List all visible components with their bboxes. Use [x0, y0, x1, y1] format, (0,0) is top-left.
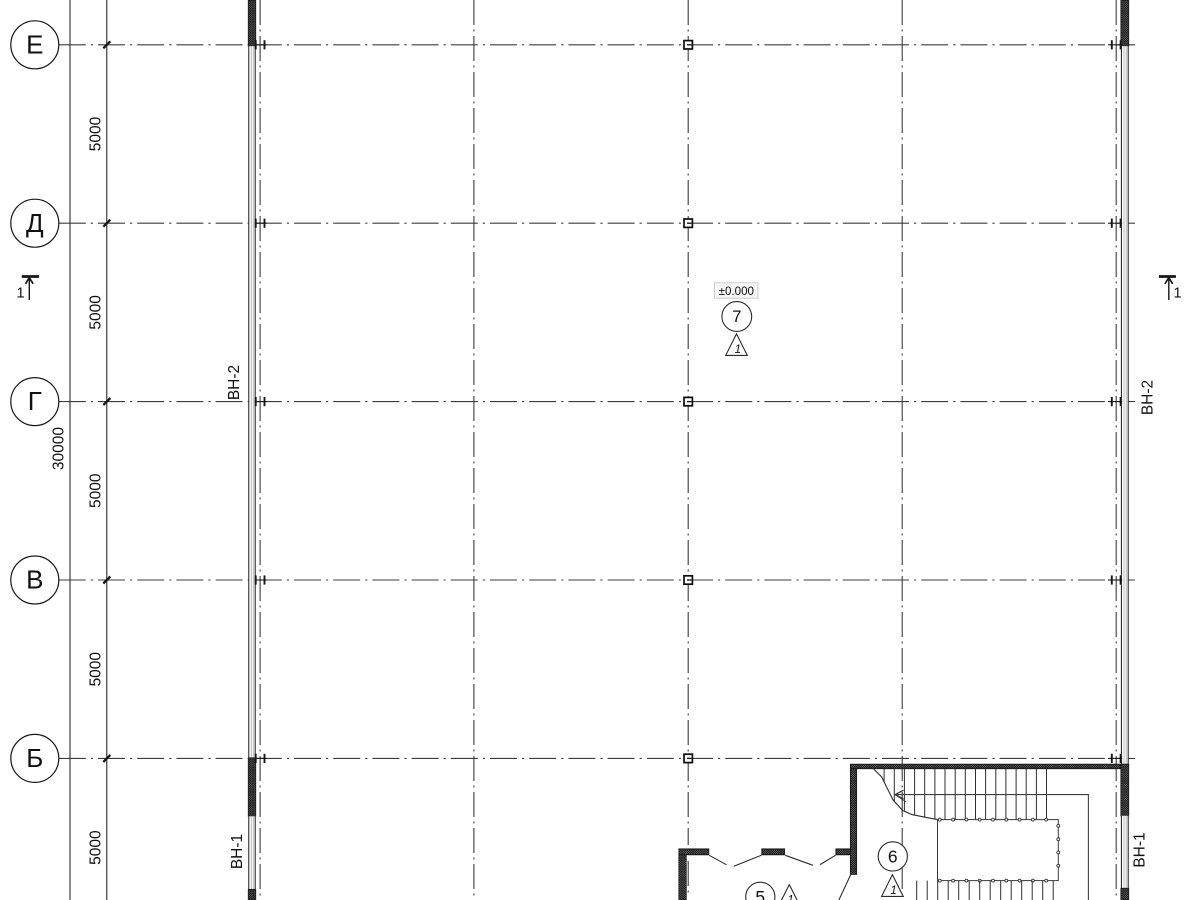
svg-text:±0.000: ±0.000: [719, 285, 754, 298]
svg-text:5000: 5000: [88, 116, 105, 151]
svg-text:ВН-2: ВН-2: [226, 365, 243, 400]
svg-text:1: 1: [1174, 285, 1182, 301]
svg-text:6: 6: [888, 847, 898, 867]
svg-text:Д: Д: [26, 208, 44, 238]
svg-text:1: 1: [787, 895, 793, 900]
svg-text:5000: 5000: [88, 473, 105, 508]
svg-text:В: В: [26, 565, 43, 595]
svg-text:1: 1: [735, 344, 741, 356]
svg-text:Г: Г: [28, 386, 42, 416]
svg-text:5000: 5000: [88, 652, 105, 687]
svg-text:1: 1: [890, 885, 896, 897]
svg-text:Б: Б: [26, 743, 43, 773]
svg-text:30000: 30000: [51, 427, 68, 470]
svg-text:ВН-1: ВН-1: [1131, 832, 1148, 867]
svg-text:1: 1: [17, 285, 25, 301]
svg-text:5: 5: [755, 887, 765, 900]
svg-text:Е: Е: [26, 29, 43, 59]
svg-text:5000: 5000: [88, 295, 105, 330]
svg-text:5000: 5000: [88, 830, 105, 865]
svg-text:ВН-1: ВН-1: [229, 834, 246, 869]
svg-text:7: 7: [732, 308, 741, 326]
svg-text:ВН-2: ВН-2: [1140, 380, 1157, 415]
